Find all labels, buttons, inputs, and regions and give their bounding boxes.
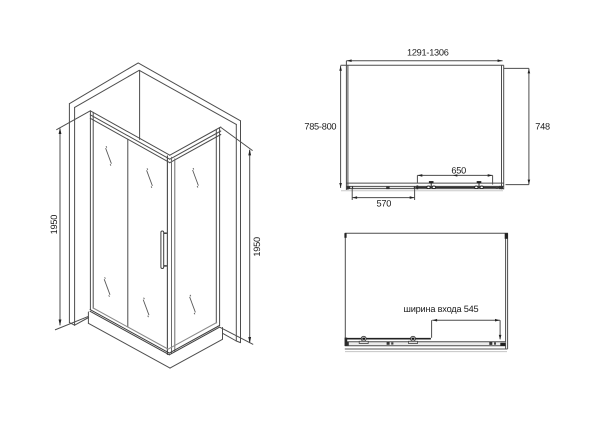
svg-text:748: 748 xyxy=(535,121,550,131)
svg-text:1950: 1950 xyxy=(252,237,262,257)
svg-text:650: 650 xyxy=(451,166,466,176)
svg-text:570: 570 xyxy=(377,198,392,208)
svg-text:ширина входа 545: ширина входа 545 xyxy=(404,304,479,314)
svg-text:1950: 1950 xyxy=(49,215,59,235)
svg-text:785-800: 785-800 xyxy=(304,121,336,131)
svg-text:1291-1306: 1291-1306 xyxy=(407,47,449,57)
